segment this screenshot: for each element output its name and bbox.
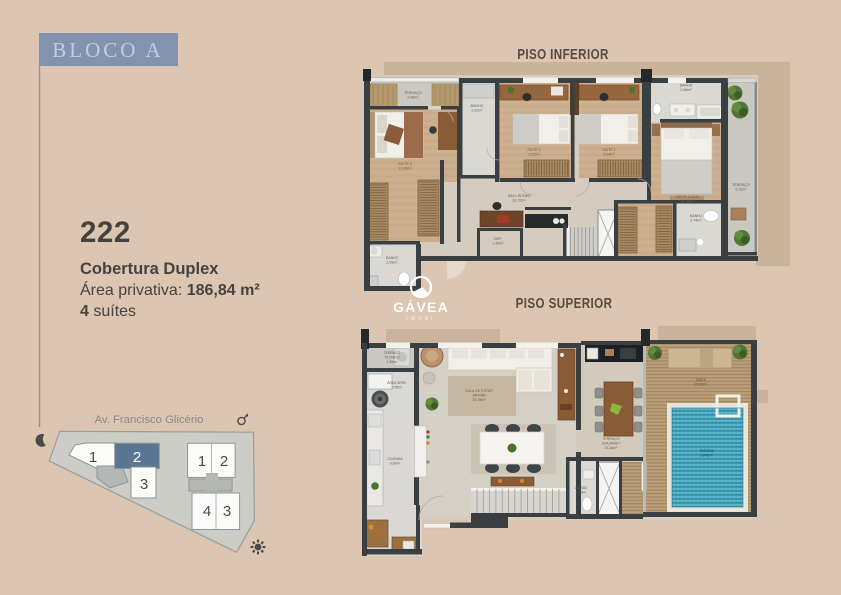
svg-text:SUITE 2: SUITE 2 <box>527 148 541 152</box>
svg-text:1: 1 <box>198 453 206 470</box>
svg-text:1: 1 <box>89 449 97 466</box>
svg-text:PISCINA: PISCINA <box>700 449 715 453</box>
svg-text:1.63m²: 1.63m² <box>576 490 587 494</box>
svg-text:BANH2: BANH2 <box>386 256 398 260</box>
svg-text:PISO SUPERIOR: PISO SUPERIOR <box>516 295 613 312</box>
svg-text:GÁVEA: GÁVEA <box>393 299 449 315</box>
svg-text:4 suítes: 4 suítes <box>80 303 136 320</box>
svg-text:LAVABO: LAVABO <box>575 486 588 490</box>
svg-text:PISO INFERIOR: PISO INFERIOR <box>517 46 609 63</box>
svg-text:GOURMET: GOURMET <box>602 441 621 445</box>
svg-text:3: 3 <box>223 503 231 520</box>
svg-text:2: 2 <box>133 449 141 466</box>
svg-text:9.04m²: 9.04m² <box>603 152 615 156</box>
svg-text:BANHO: BANHO <box>680 84 693 88</box>
svg-text:12.76m²: 12.76m² <box>681 199 695 203</box>
svg-text:TERRAÇO: TERRAÇO <box>732 183 750 187</box>
svg-text:SUITE CASAL: SUITE CASAL <box>676 195 699 199</box>
svg-text:Av. Francisco Glicério: Av. Francisco Glicério <box>95 414 204 426</box>
svg-text:JANTAR: JANTAR <box>472 393 486 397</box>
svg-text:TERRAÇO: TERRAÇO <box>404 91 422 95</box>
svg-text:SALA DE ESTAR: SALA DE ESTAR <box>465 389 493 393</box>
svg-text:8.42m²: 8.42m² <box>701 453 713 457</box>
svg-text:2.61m²: 2.61m² <box>471 108 483 112</box>
svg-text:Área privativa: 186,84 m²: Área privativa: 186,84 m² <box>80 280 260 299</box>
svg-text:1.92m²: 1.92m² <box>387 360 398 364</box>
svg-text:HALL ÍNTIMO: HALL ÍNTIMO <box>508 194 531 198</box>
svg-text:2.59m²: 2.59m² <box>386 260 398 264</box>
svg-text:SUITE 1: SUITE 1 <box>602 148 616 152</box>
svg-text:10.72m²: 10.72m² <box>512 198 526 202</box>
svg-text:DECK: DECK <box>696 378 707 382</box>
svg-text:2.74m²: 2.74m² <box>690 218 702 222</box>
svg-text:15.38m²: 15.38m² <box>604 446 618 450</box>
svg-text:TERRAÇO: TERRAÇO <box>384 351 401 355</box>
svg-text:2: 2 <box>220 453 228 470</box>
svg-text:TERRAÇO: TERRAÇO <box>602 437 620 441</box>
svg-text:ÁREA SERV.: ÁREA SERV. <box>387 381 407 385</box>
svg-text:TECNICO: TECNICO <box>384 355 400 359</box>
svg-text:25.78m²: 25.78m² <box>472 398 486 402</box>
svg-text:DEP.: DEP. <box>494 237 502 241</box>
svg-text:3: 3 <box>140 476 148 493</box>
svg-text:2.96m²: 2.96m² <box>680 88 692 92</box>
svg-text:BANH2: BANH2 <box>690 214 702 218</box>
svg-text:15.52m²: 15.52m² <box>694 382 708 386</box>
svg-text:2.88m²: 2.88m² <box>407 95 419 99</box>
svg-text:IMOBI: IMOBI <box>406 316 435 322</box>
svg-text:1.40m²: 1.40m² <box>492 241 504 245</box>
svg-text:SUITE 3: SUITE 3 <box>398 162 412 166</box>
svg-text:2.55m²: 2.55m² <box>392 385 403 389</box>
svg-text:BLOCO A: BLOCO A <box>52 38 163 62</box>
svg-text:Cobertura Duplex: Cobertura Duplex <box>80 260 219 278</box>
svg-text:9.22m²: 9.22m² <box>528 152 540 156</box>
svg-text:5.25m²: 5.25m² <box>735 187 747 191</box>
svg-text:12.06m²: 12.06m² <box>398 166 412 170</box>
svg-text:222: 222 <box>80 216 131 249</box>
svg-text:BANHO: BANHO <box>471 104 484 108</box>
svg-text:9.30m²: 9.30m² <box>390 461 401 465</box>
svg-text:4: 4 <box>203 503 211 520</box>
svg-text:COZINHA: COZINHA <box>387 457 403 461</box>
